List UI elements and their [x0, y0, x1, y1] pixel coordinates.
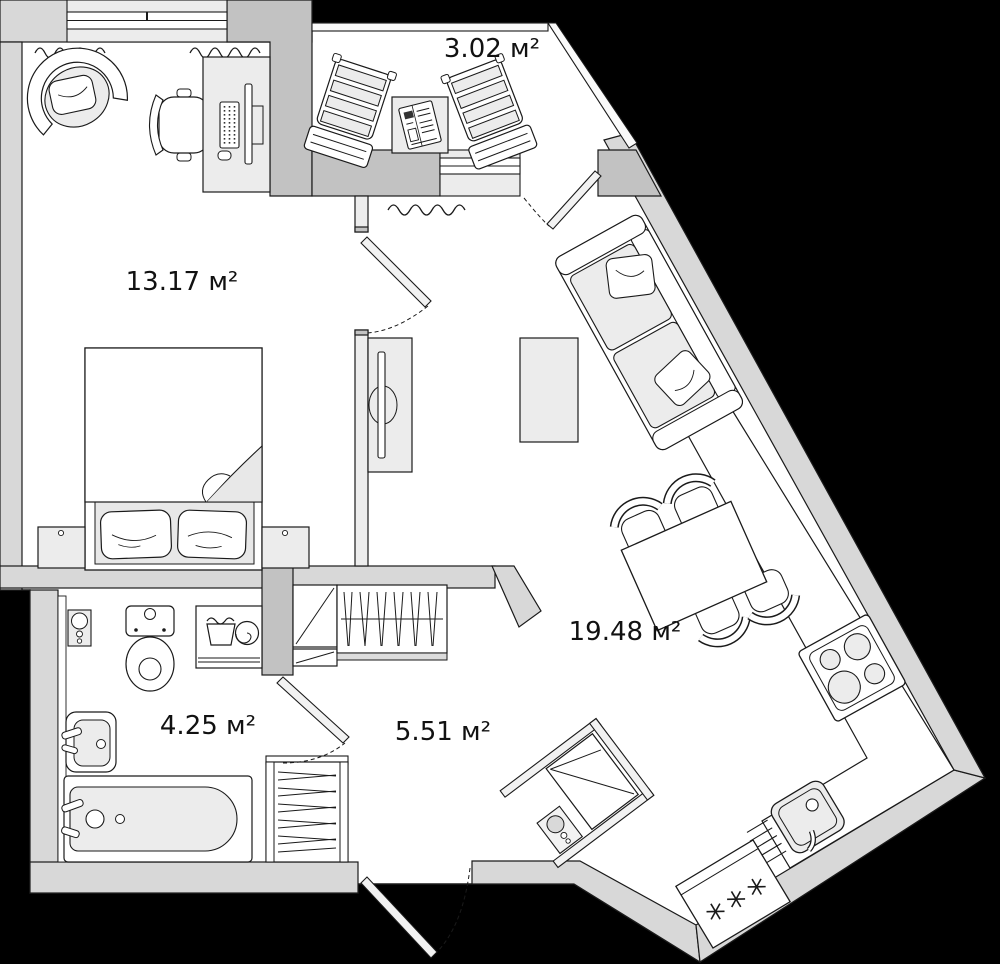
desk [203, 57, 270, 192]
coffee-table [520, 338, 578, 442]
sofa-pillow [605, 254, 656, 299]
bedroom-window [67, 0, 227, 42]
nightstand [38, 527, 85, 568]
pillow [100, 510, 172, 559]
coat-wardrobe [337, 585, 447, 660]
hallway-wardrobe [266, 756, 348, 862]
tv-icon [378, 352, 385, 458]
bathroom-left-wall [30, 590, 58, 893]
toilet-icon [126, 606, 174, 691]
balcony-glazing-top [312, 23, 548, 31]
water-heater-icon [68, 610, 91, 646]
shaft-column [262, 566, 293, 675]
room-label-living-room: 19.48 м² [569, 617, 682, 647]
shoe-cabinet [293, 585, 337, 666]
floor-plan: 13.17 м² 3.02 м² 19.48 м² 4.25 м² 5.51 м… [0, 0, 1000, 964]
balcony-table [392, 97, 448, 153]
room-label-bathroom: 4.25 м² [160, 711, 256, 741]
monitor-icon [245, 84, 252, 164]
washing-machine-icon [196, 606, 262, 668]
pillow [177, 510, 247, 559]
double-bed [85, 348, 262, 570]
left-exterior-wall [0, 42, 22, 590]
bathtub-icon [61, 776, 252, 862]
floor-plan-canvas: 13.17 м² 3.02 м² 19.48 м² 4.25 м² 5.51 м… [0, 0, 1000, 964]
tv-stand [368, 338, 412, 472]
door-jamb-top [355, 227, 368, 232]
room-label-bedroom: 13.17 м² [126, 267, 239, 297]
keyboard-icon [220, 102, 239, 148]
desk-chair [150, 89, 210, 161]
room-label-hallway: 5.51 м² [395, 717, 491, 747]
wash-sink-icon [61, 712, 116, 772]
room-label-balcony: 3.02 м² [444, 34, 540, 64]
mouse-icon [218, 151, 231, 160]
bottom-wall-left [30, 862, 358, 893]
bedroom-partition-wall [355, 330, 368, 566]
monitor-stand [252, 106, 263, 144]
door-jamb-bottom [355, 330, 368, 335]
nightstand [262, 527, 309, 568]
